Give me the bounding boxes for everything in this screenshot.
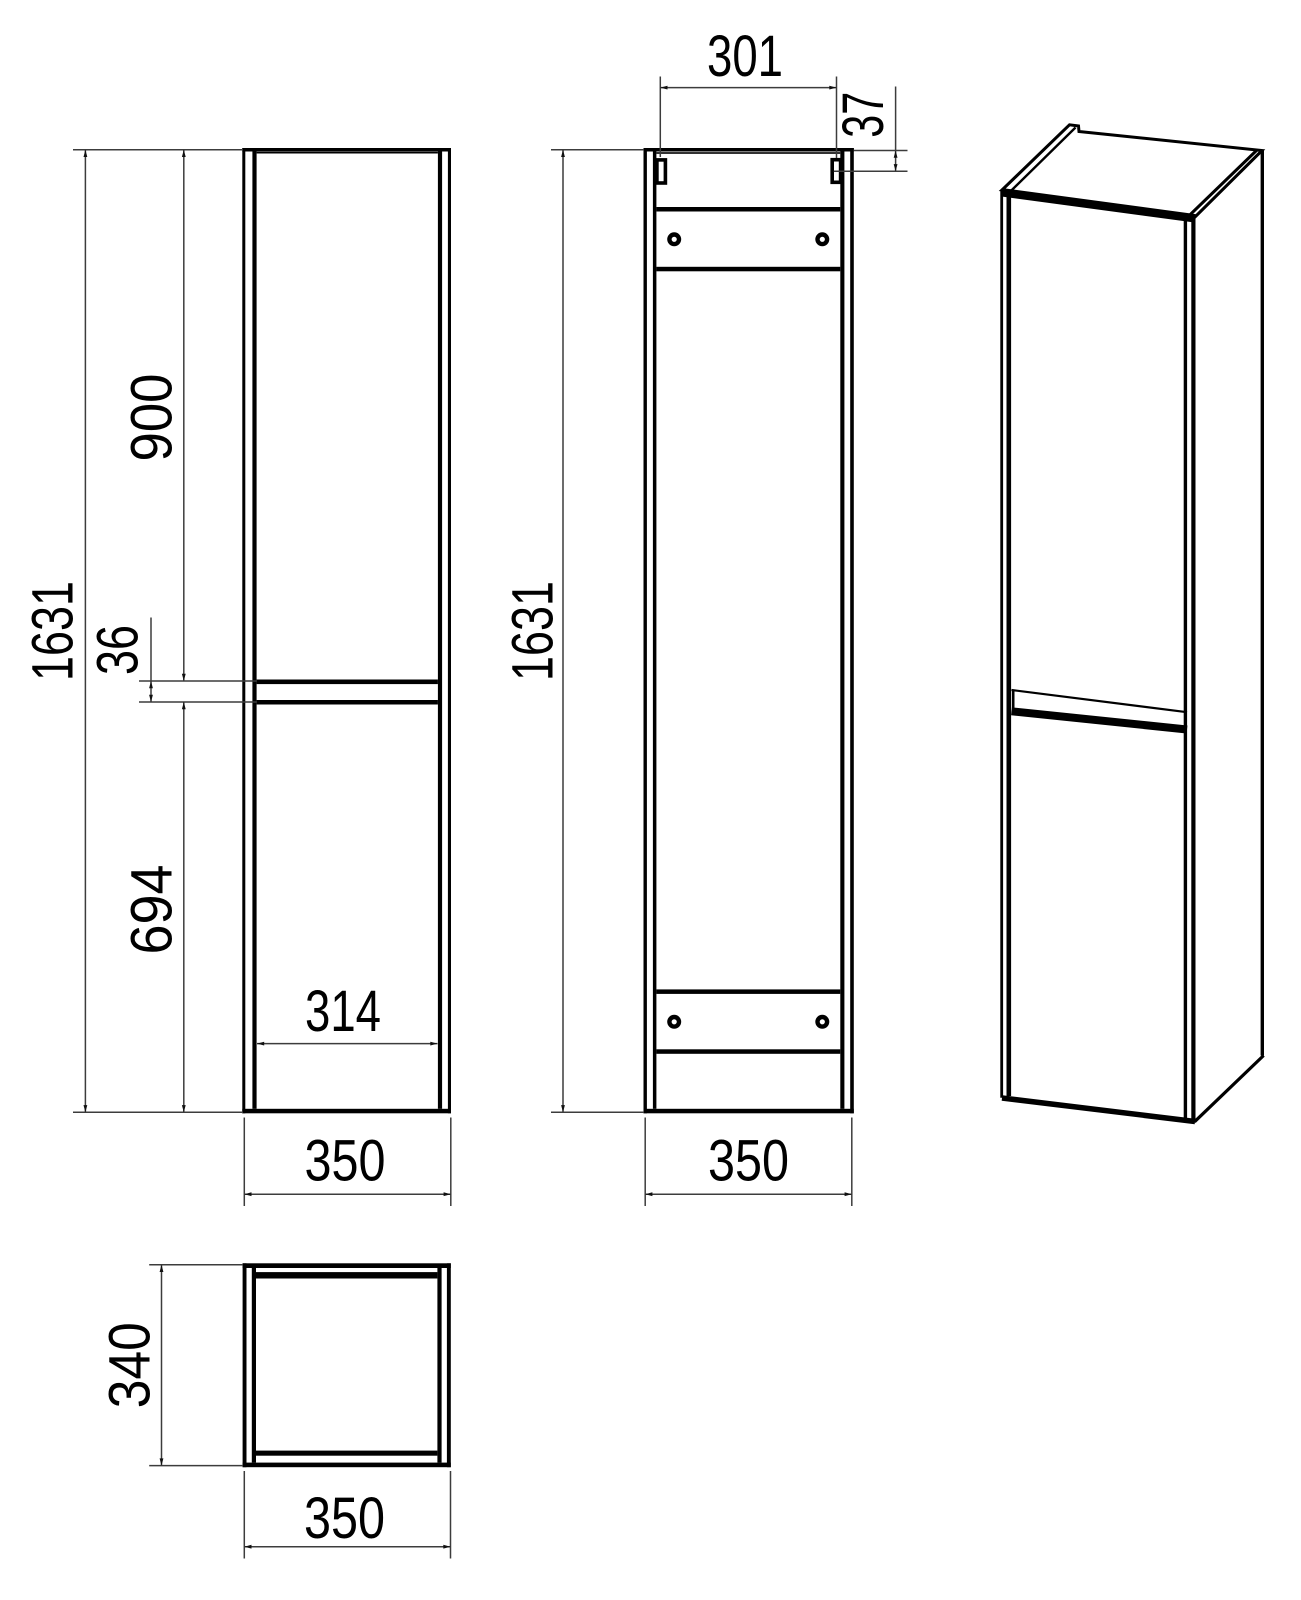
svg-text:1631: 1631 [21,581,86,681]
svg-text:350: 350 [304,1486,385,1551]
svg-text:350: 350 [305,1129,386,1194]
svg-text:37: 37 [831,92,896,138]
svg-text:694: 694 [120,865,185,955]
svg-text:36: 36 [86,625,151,675]
svg-text:340: 340 [98,1322,163,1408]
svg-text:900: 900 [120,374,185,462]
svg-text:1631: 1631 [501,581,566,681]
svg-text:314: 314 [305,979,381,1044]
svg-text:350: 350 [708,1129,789,1194]
svg-text:301: 301 [707,24,783,89]
